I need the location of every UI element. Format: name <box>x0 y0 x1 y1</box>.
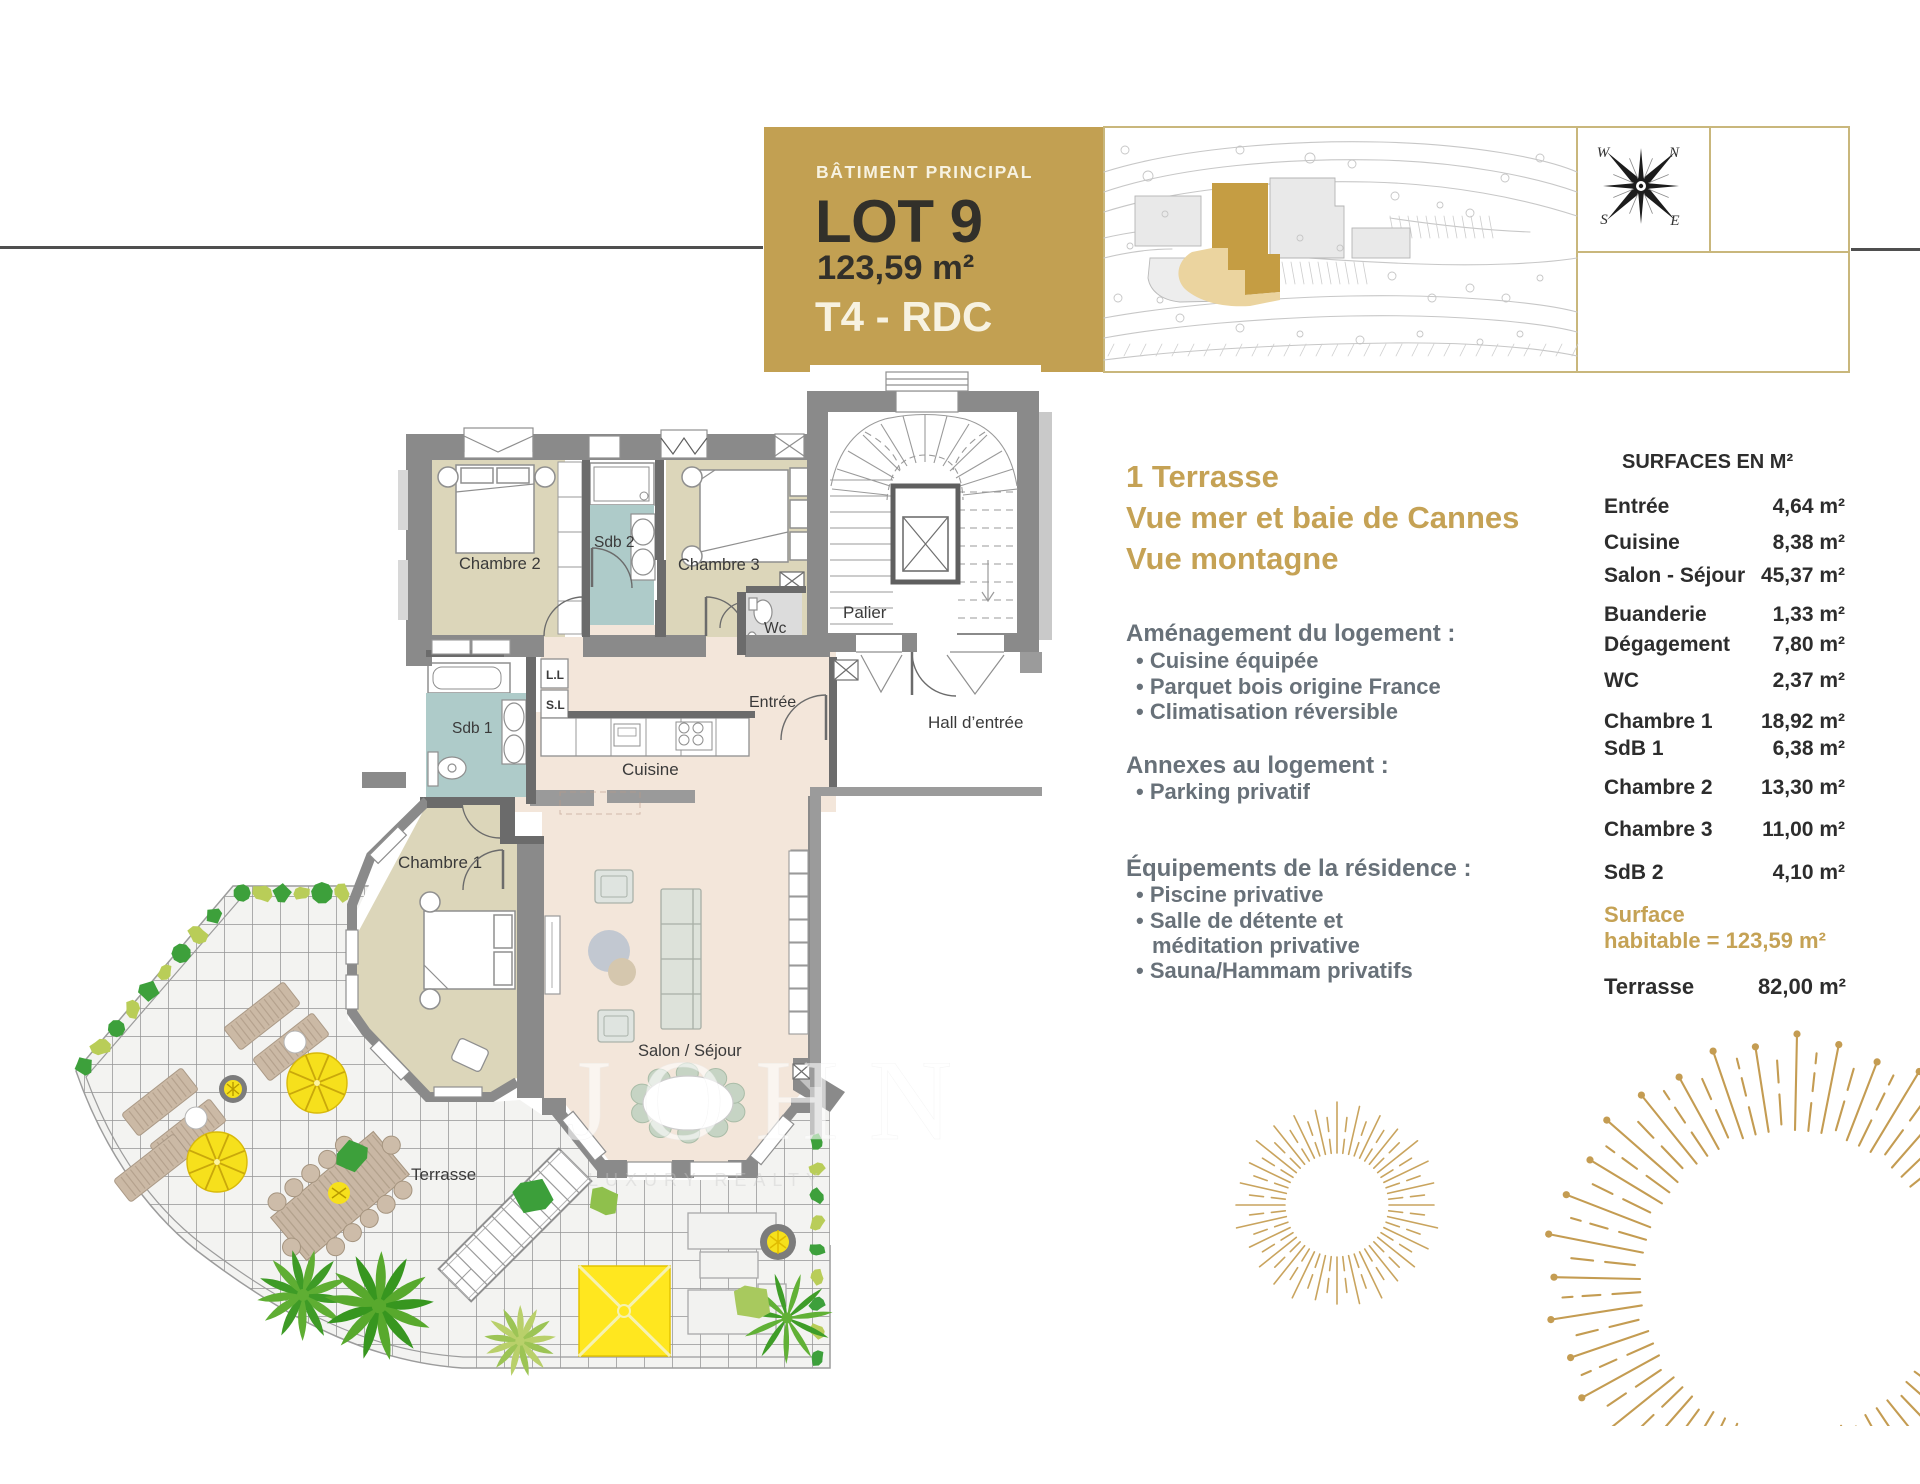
svg-text:1 Terrasse: 1 Terrasse <box>1126 459 1279 494</box>
svg-text:Chambre 3: Chambre 3 <box>1604 818 1713 841</box>
svg-text:Cuisine: Cuisine <box>622 760 679 779</box>
svg-text:Dégagement: Dégagement <box>1604 633 1730 656</box>
svg-text:123,59 m²: 123,59 m² <box>817 249 974 287</box>
svg-text:W: W <box>1597 145 1611 161</box>
svg-text:• Climatisation réversible: • Climatisation réversible <box>1136 699 1398 724</box>
svg-text:Surface: Surface <box>1604 902 1685 927</box>
svg-text:Annexes au logement :: Annexes au logement : <box>1126 752 1389 779</box>
svg-text:2,37 m²: 2,37 m² <box>1773 669 1845 692</box>
svg-text:• Sauna/Hammam privatifs: • Sauna/Hammam privatifs <box>1136 958 1413 983</box>
svg-text:• Parking privatif: • Parking privatif <box>1136 779 1311 804</box>
svg-text:méditation privative: méditation privative <box>1152 933 1360 958</box>
svg-text:1,33 m²: 1,33 m² <box>1773 603 1845 626</box>
svg-text:18,92 m²: 18,92 m² <box>1761 710 1845 733</box>
svg-text:Salon - Séjour: Salon - Séjour <box>1604 564 1745 587</box>
svg-text:Vue mer et baie de Cannes: Vue mer et baie de Cannes <box>1126 500 1519 535</box>
svg-text:SdB 1: SdB 1 <box>1604 737 1664 760</box>
svg-text:13,30 m²: 13,30 m² <box>1761 776 1845 799</box>
svg-text:11,00 m²: 11,00 m² <box>1762 818 1845 841</box>
svg-text:7,80 m²: 7,80 m² <box>1773 633 1845 656</box>
svg-text:82,00 m²: 82,00 m² <box>1758 974 1846 999</box>
svg-text:Chambre 1: Chambre 1 <box>1604 710 1713 733</box>
svg-text:Chambre 3: Chambre 3 <box>678 556 760 574</box>
svg-text:6,38 m²: 6,38 m² <box>1773 737 1845 760</box>
svg-text:Aménagement du logement :: Aménagement du logement : <box>1126 620 1455 647</box>
svg-text:Terrasse: Terrasse <box>411 1165 476 1184</box>
svg-text:T4 - RDC: T4 - RDC <box>815 293 992 340</box>
svg-text:JOHN: JOHN <box>566 1037 982 1165</box>
svg-text:S.L: S.L <box>546 698 565 712</box>
svg-text:Sdb 2: Sdb 2 <box>594 534 635 551</box>
svg-text:Entrée: Entrée <box>749 694 796 711</box>
svg-text:• Piscine privative: • Piscine privative <box>1136 882 1323 907</box>
svg-text:• Parquet bois origine France: • Parquet bois origine France <box>1136 674 1441 699</box>
svg-text:Entrée: Entrée <box>1604 495 1669 518</box>
svg-text:Chambre 2: Chambre 2 <box>1604 776 1713 799</box>
svg-text:• Cuisine équipée: • Cuisine équipée <box>1136 648 1319 673</box>
svg-text:Vue montagne: Vue montagne <box>1126 541 1338 576</box>
svg-text:E: E <box>1669 213 1679 229</box>
svg-text:WC: WC <box>1604 669 1639 692</box>
svg-text:Buanderie: Buanderie <box>1604 603 1707 626</box>
svg-text:4,64 m²: 4,64 m² <box>1773 495 1845 518</box>
svg-text:Cuisine: Cuisine <box>1604 531 1680 554</box>
svg-text:SURFACES EN M²: SURFACES EN M² <box>1622 451 1793 473</box>
svg-text:• Salle de détente et: • Salle de détente et <box>1136 908 1344 933</box>
svg-text:N: N <box>1668 145 1680 161</box>
svg-text:8,38 m²: 8,38 m² <box>1773 531 1845 554</box>
svg-text:Équipements de la résidence :: Équipements de la résidence : <box>1126 854 1471 882</box>
svg-text:S: S <box>1600 212 1608 228</box>
svg-text:Hall d’entrée: Hall d’entrée <box>928 713 1023 732</box>
svg-text:habitable = 123,59 m²: habitable = 123,59 m² <box>1604 928 1826 953</box>
svg-text:Palier: Palier <box>843 603 887 622</box>
svg-text:Wc: Wc <box>764 620 787 637</box>
svg-text:LOT 9: LOT 9 <box>815 188 983 255</box>
svg-text:Terrasse: Terrasse <box>1604 974 1694 999</box>
svg-text:Sdb 1: Sdb 1 <box>452 720 493 737</box>
svg-text:Chambre 2: Chambre 2 <box>459 555 541 573</box>
svg-text:LUXURY REALTY: LUXURY REALTY <box>588 1170 825 1190</box>
svg-text:BÂTIMENT PRINCIPAL: BÂTIMENT PRINCIPAL <box>816 161 1033 182</box>
svg-text:45,37 m²: 45,37 m² <box>1761 564 1845 587</box>
svg-text:4,10 m²: 4,10 m² <box>1773 861 1845 884</box>
svg-text:SdB 2: SdB 2 <box>1604 861 1664 884</box>
svg-text:L.L: L.L <box>546 668 564 682</box>
